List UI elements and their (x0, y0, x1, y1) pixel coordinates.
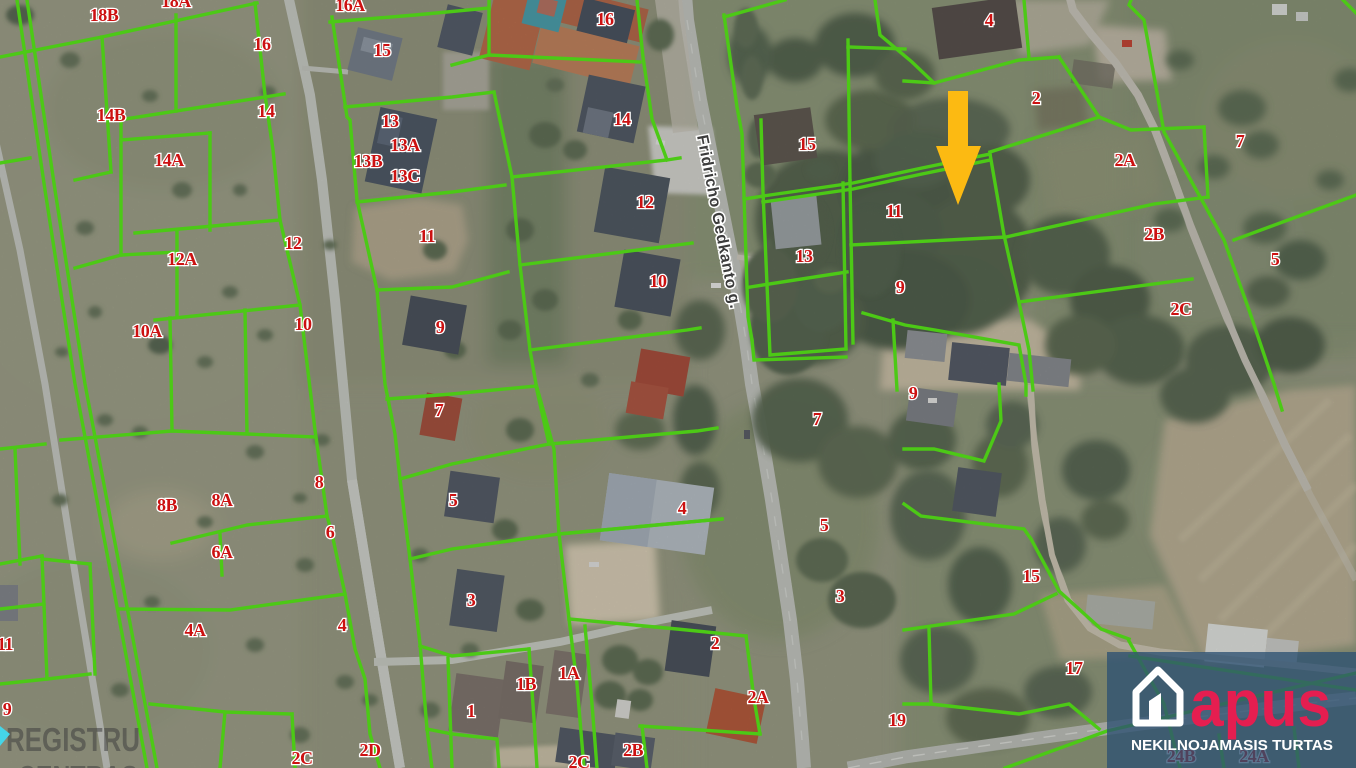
svg-text:2B: 2B (1144, 224, 1165, 244)
svg-text:18A: 18A (161, 0, 191, 11)
svg-text:16A: 16A (335, 0, 365, 15)
svg-text:9: 9 (909, 383, 918, 403)
svg-text:14: 14 (614, 109, 632, 129)
svg-text:14A: 14A (154, 150, 184, 170)
svg-text:7: 7 (1236, 131, 1245, 151)
svg-text:11: 11 (419, 226, 436, 246)
svg-text:2D: 2D (360, 740, 382, 760)
svg-text:19: 19 (889, 710, 907, 730)
svg-text:6A: 6A (212, 542, 234, 562)
svg-text:2B: 2B (623, 740, 644, 760)
svg-text:2C: 2C (569, 752, 590, 768)
svg-text:6: 6 (326, 522, 335, 542)
svg-text:7: 7 (813, 409, 822, 429)
svg-text:14: 14 (258, 101, 276, 121)
svg-text:2A: 2A (1115, 150, 1137, 170)
svg-text:1A: 1A (559, 663, 581, 683)
svg-text:9: 9 (436, 317, 445, 337)
svg-text:2C: 2C (292, 748, 313, 768)
svg-text:9: 9 (3, 699, 12, 719)
svg-text:5: 5 (820, 515, 829, 535)
svg-text:2: 2 (711, 633, 720, 653)
svg-text:8: 8 (315, 472, 324, 492)
svg-text:2A: 2A (748, 687, 770, 707)
svg-text:13: 13 (796, 246, 814, 266)
svg-text:4A: 4A (185, 620, 207, 640)
svg-text:10: 10 (295, 314, 313, 334)
svg-text:8B: 8B (157, 495, 178, 515)
svg-text:CENTRAS: CENTRAS (18, 759, 138, 768)
svg-text:12A: 12A (167, 249, 197, 269)
svg-text:5: 5 (1271, 249, 1280, 269)
svg-text:16: 16 (254, 34, 272, 54)
svg-text:15: 15 (374, 40, 392, 60)
svg-text:11: 11 (886, 201, 903, 221)
svg-text:3: 3 (836, 586, 845, 606)
svg-text:7: 7 (435, 400, 444, 420)
svg-text:13: 13 (382, 111, 400, 131)
svg-text:16: 16 (597, 9, 615, 29)
svg-text:2: 2 (1032, 88, 1041, 108)
svg-text:1B: 1B (516, 674, 537, 694)
svg-text:5: 5 (449, 490, 458, 510)
svg-text:13B: 13B (354, 151, 383, 171)
svg-text:1: 1 (467, 701, 476, 721)
svg-text:13C: 13C (390, 166, 420, 186)
svg-text:4: 4 (338, 615, 347, 635)
svg-text:15: 15 (1023, 566, 1041, 586)
svg-text:12: 12 (637, 192, 655, 212)
svg-text:14B: 14B (97, 105, 126, 125)
svg-text:13A: 13A (390, 135, 420, 155)
svg-text:15: 15 (799, 134, 817, 154)
svg-text:10A: 10A (132, 321, 162, 341)
svg-text:12: 12 (285, 233, 303, 253)
svg-text:9: 9 (896, 277, 905, 297)
svg-text:8A: 8A (212, 490, 234, 510)
svg-text:REGISTRU: REGISTRU (6, 721, 140, 758)
svg-text:4: 4 (985, 10, 994, 30)
svg-text:4: 4 (678, 498, 687, 518)
svg-text:3: 3 (467, 590, 476, 610)
svg-text:17: 17 (1066, 658, 1084, 678)
svg-text:apus: apus (1190, 666, 1331, 740)
svg-text:11: 11 (0, 634, 13, 654)
svg-text:10: 10 (650, 271, 668, 291)
svg-text:NEKILNOJAMASIS TURTAS: NEKILNOJAMASIS TURTAS (1131, 738, 1333, 754)
svg-text:2C: 2C (1171, 299, 1192, 319)
svg-text:18B: 18B (90, 5, 119, 25)
